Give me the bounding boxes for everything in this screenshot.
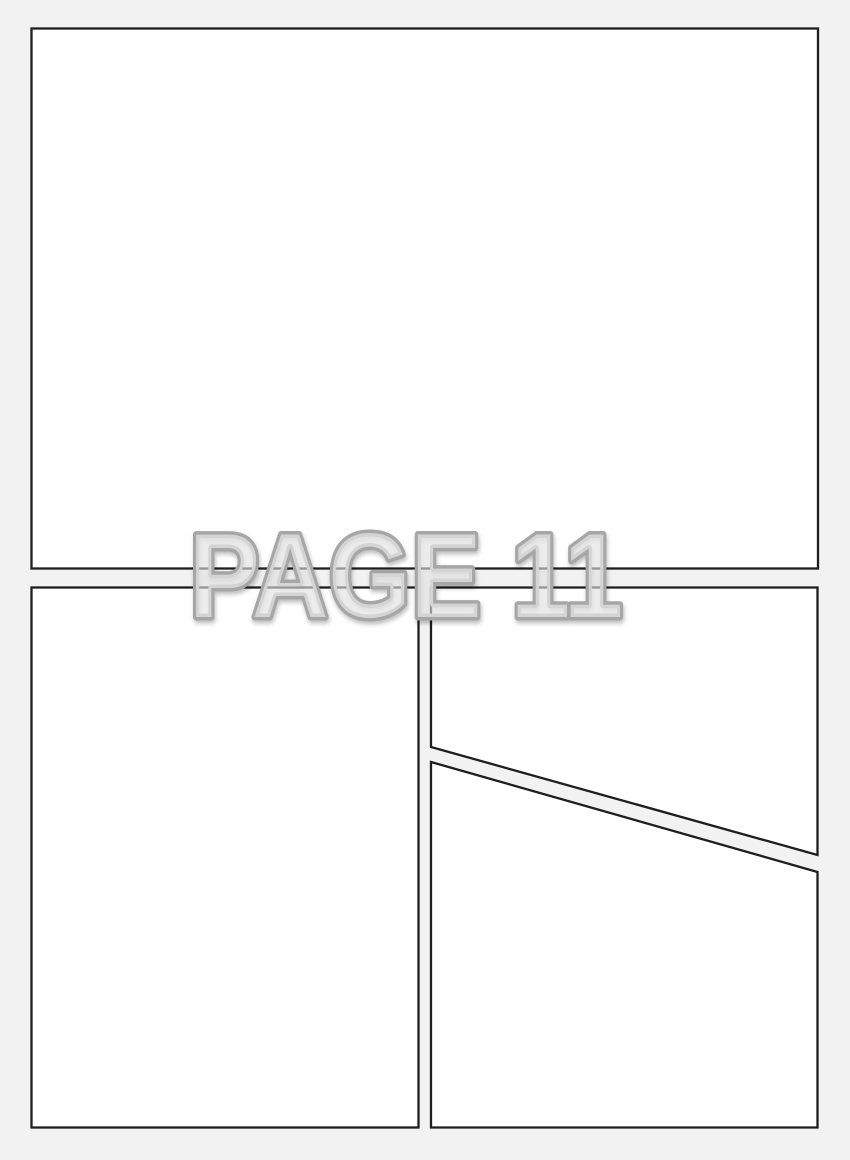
comic-page-canvas: PAGE 11 bbox=[0, 0, 850, 1160]
panel-2-bottom-left bbox=[32, 588, 419, 1128]
panel-1-top bbox=[32, 29, 819, 569]
page-number-label: PAGE 11 bbox=[189, 509, 623, 643]
comic-page: PAGE 11 bbox=[0, 0, 850, 1160]
